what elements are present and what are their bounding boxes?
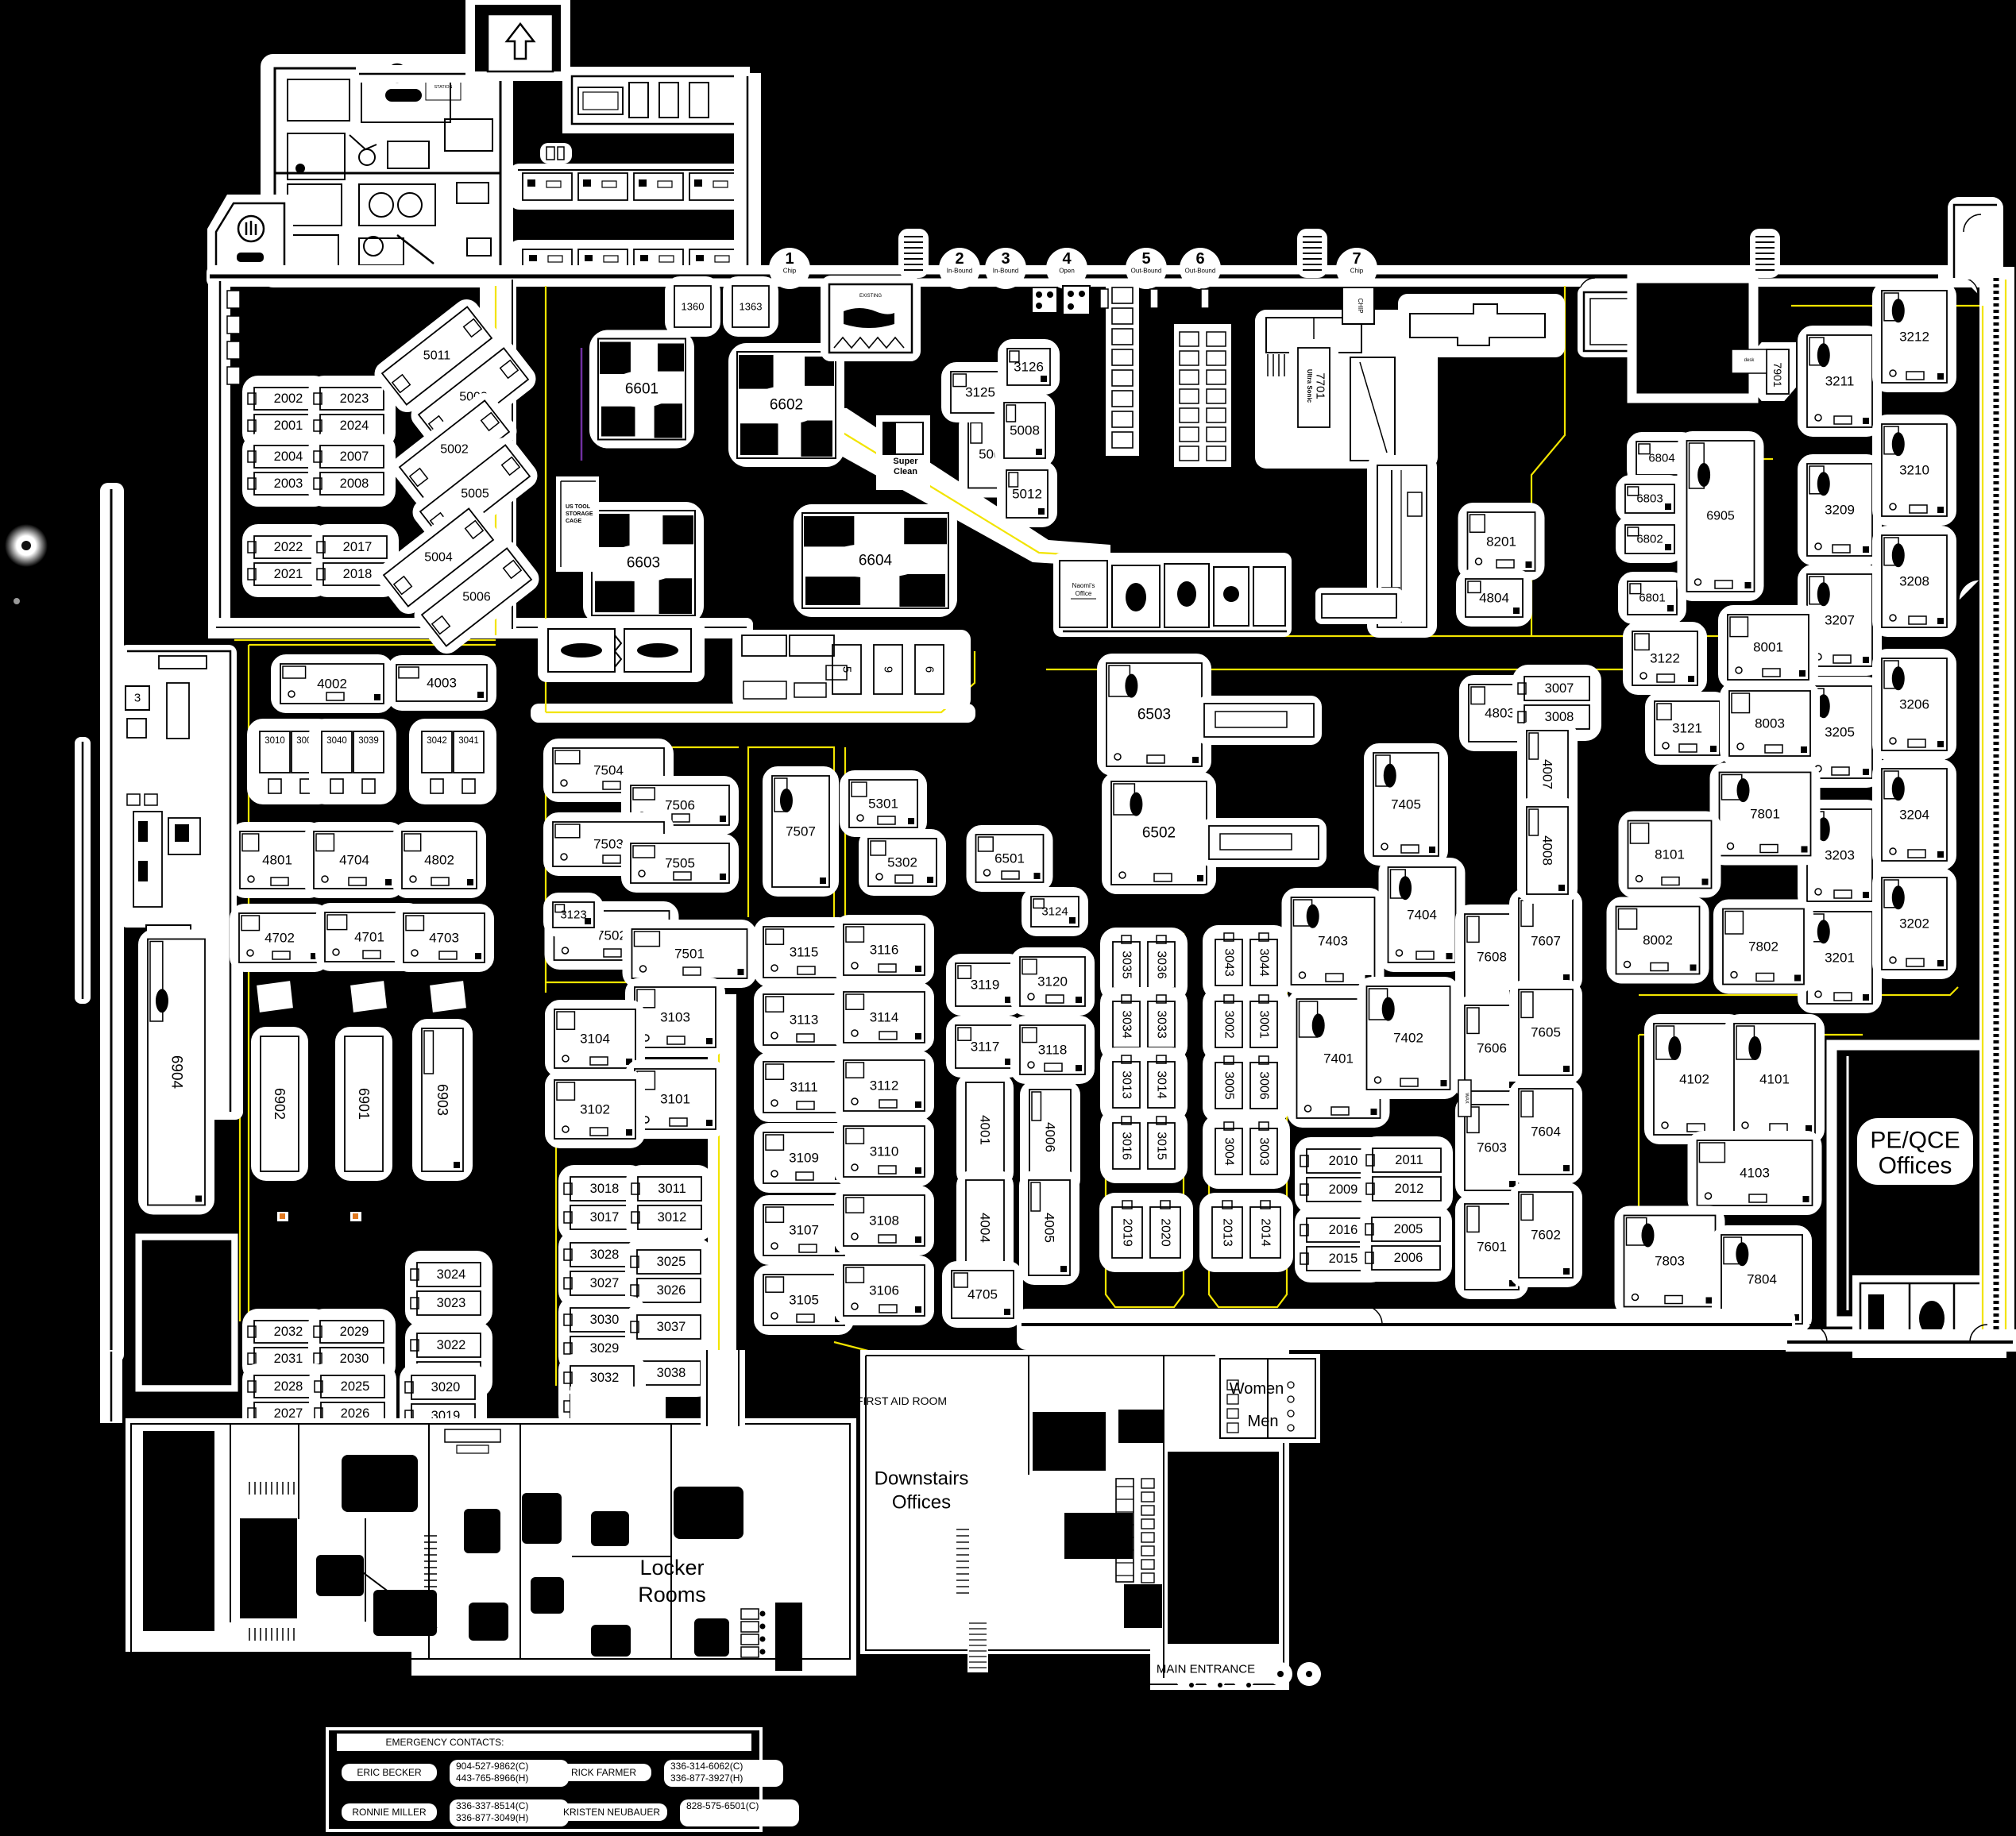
svg-text:3204: 3204 — [1899, 808, 1929, 823]
svg-text:3037: 3037 — [657, 1320, 686, 1334]
svg-text:2028: 2028 — [274, 1379, 303, 1394]
svg-text:3010: 3010 — [265, 736, 285, 746]
svg-text:2001: 2001 — [274, 418, 303, 433]
svg-text:3209: 3209 — [1825, 503, 1855, 518]
svg-text:2: 2 — [955, 250, 964, 268]
svg-text:7701: 7701 — [1314, 372, 1327, 399]
svg-text:3126: 3126 — [1014, 360, 1044, 375]
svg-text:EMERGENCY CONTACTS:: EMERGENCY CONTACTS: — [386, 1737, 504, 1748]
svg-text:6903: 6903 — [434, 1084, 450, 1116]
svg-text:828-575-6501(C): 828-575-6501(C) — [686, 1800, 759, 1811]
svg-text:Downstairs: Downstairs — [875, 1468, 969, 1490]
svg-text:5006: 5006 — [462, 591, 491, 604]
svg-text:2022: 2022 — [274, 540, 303, 554]
svg-text:7501: 7501 — [674, 947, 705, 962]
svg-text:2010: 2010 — [1329, 1154, 1358, 1168]
svg-text:3014: 3014 — [1155, 1070, 1168, 1099]
svg-text:7507: 7507 — [786, 824, 816, 839]
svg-text:2004: 2004 — [274, 449, 303, 464]
svg-text:2018: 2018 — [343, 567, 373, 581]
svg-text:3202: 3202 — [1899, 916, 1929, 931]
svg-text:7401: 7401 — [1323, 1051, 1354, 1066]
svg-text:2007: 2007 — [340, 449, 369, 464]
svg-text:Out-Bound: Out-Bound — [1185, 268, 1216, 275]
svg-text:2024: 2024 — [340, 418, 369, 433]
svg-text:3022: 3022 — [437, 1338, 466, 1352]
svg-text:3203: 3203 — [1825, 848, 1855, 863]
svg-text:7: 7 — [1352, 250, 1361, 268]
svg-text:336-337-8514(C): 336-337-8514(C) — [456, 1800, 528, 1811]
svg-text:US TOOL: US TOOL — [566, 504, 591, 510]
svg-text:5011: 5011 — [423, 349, 451, 363]
svg-text:336-314-6062(C): 336-314-6062(C) — [670, 1761, 743, 1772]
svg-text:3112: 3112 — [870, 1078, 899, 1093]
svg-text:3027: 3027 — [590, 1276, 620, 1290]
svg-text:904-527-9862(C): 904-527-9862(C) — [456, 1761, 528, 1772]
svg-text:3002: 3002 — [1222, 1010, 1236, 1039]
svg-text:7606: 7606 — [1477, 1041, 1507, 1056]
svg-text:Men: Men — [1248, 1413, 1279, 1430]
svg-text:3119: 3119 — [971, 978, 1000, 993]
svg-text:RICK FARMER: RICK FARMER — [571, 1767, 636, 1778]
svg-text:7608: 7608 — [1477, 950, 1507, 965]
svg-text:336-877-3927(H): 336-877-3927(H) — [670, 1772, 743, 1784]
svg-text:3041: 3041 — [458, 736, 479, 746]
svg-text:7402: 7402 — [1393, 1031, 1423, 1046]
svg-text:CHIP: CHIP — [1357, 298, 1364, 313]
svg-text:3036: 3036 — [1155, 951, 1168, 979]
svg-text:RONNIE MILLER: RONNIE MILLER — [352, 1807, 427, 1818]
svg-text:EXISTING: EXISTING — [859, 294, 882, 299]
svg-text:3107: 3107 — [789, 1223, 819, 1238]
svg-text:3207: 3207 — [1825, 613, 1855, 628]
svg-text:2013: 2013 — [1221, 1218, 1234, 1247]
svg-text:7802: 7802 — [1748, 939, 1778, 955]
svg-text:3208: 3208 — [1899, 574, 1929, 589]
svg-text:3111: 3111 — [790, 1080, 817, 1095]
svg-text:5002: 5002 — [440, 443, 469, 457]
svg-text:6603: 6603 — [627, 555, 660, 572]
svg-text:3106: 3106 — [869, 1283, 899, 1298]
svg-text:2029: 2029 — [340, 1325, 369, 1339]
svg-text:ERIC BECKER: ERIC BECKER — [357, 1767, 422, 1778]
svg-text:2021: 2021 — [274, 567, 303, 581]
svg-text:3020: 3020 — [431, 1380, 461, 1394]
svg-text:3117: 3117 — [971, 1039, 1000, 1055]
svg-text:PE/QCE: PE/QCE — [1870, 1128, 1960, 1154]
svg-text:4003: 4003 — [427, 676, 457, 691]
svg-text:3212: 3212 — [1899, 330, 1929, 345]
svg-text:4704: 4704 — [339, 853, 369, 868]
svg-text:3124: 3124 — [1041, 905, 1068, 919]
svg-text:6804: 6804 — [1648, 452, 1674, 465]
svg-text:6602: 6602 — [770, 397, 803, 414]
svg-text:Office: Office — [1076, 590, 1092, 597]
svg-text:6803: 6803 — [1636, 492, 1663, 506]
svg-text:CAGE: CAGE — [566, 519, 582, 524]
svg-text:Naomi's: Naomi's — [1072, 582, 1095, 589]
svg-text:In-Bound: In-Bound — [947, 268, 972, 275]
svg-text:Offices: Offices — [892, 1492, 951, 1514]
svg-text:5302: 5302 — [887, 855, 917, 870]
svg-text:4804: 4804 — [1479, 591, 1509, 606]
svg-text:MAIN ENTRANCE: MAIN ENTRANCE — [1157, 1663, 1255, 1676]
svg-text:7605: 7605 — [1531, 1025, 1561, 1040]
svg-text:4001: 4001 — [978, 1115, 993, 1145]
svg-text:4803: 4803 — [1485, 706, 1515, 721]
svg-text:4101: 4101 — [1759, 1072, 1790, 1087]
svg-text:Locker: Locker — [639, 1556, 704, 1579]
svg-text:2011: 2011 — [1395, 1153, 1423, 1167]
svg-text:3122: 3122 — [1650, 651, 1680, 666]
svg-text:6904: 6904 — [168, 1055, 185, 1090]
svg-text:3125: 3125 — [965, 385, 995, 400]
svg-text:Clean: Clean — [894, 467, 917, 476]
svg-text:2014: 2014 — [1259, 1218, 1273, 1247]
svg-text:3024: 3024 — [437, 1267, 466, 1282]
svg-text:6802: 6802 — [1636, 533, 1663, 546]
svg-text:3123: 3123 — [560, 908, 586, 922]
svg-text:7804: 7804 — [1747, 1272, 1777, 1287]
svg-text:7506: 7506 — [665, 798, 695, 813]
svg-text:3026: 3026 — [657, 1283, 686, 1298]
svg-text:3108: 3108 — [869, 1213, 899, 1228]
svg-text:3120: 3120 — [1037, 974, 1068, 989]
svg-text:3007: 3007 — [1545, 681, 1574, 696]
svg-text:3040: 3040 — [326, 736, 347, 746]
svg-text:8101: 8101 — [1655, 847, 1685, 862]
svg-text:6801: 6801 — [1639, 592, 1665, 605]
svg-text:2005: 2005 — [1394, 1222, 1423, 1236]
svg-text:3038: 3038 — [657, 1366, 686, 1380]
svg-text:3103: 3103 — [660, 1010, 690, 1025]
svg-text:6501: 6501 — [994, 851, 1025, 866]
svg-text:336-877-3049(H): 336-877-3049(H) — [456, 1812, 528, 1823]
svg-text:2020: 2020 — [1159, 1218, 1172, 1247]
svg-text:2003: 2003 — [274, 476, 303, 491]
svg-text:3109: 3109 — [789, 1151, 819, 1166]
svg-text:6902: 6902 — [272, 1088, 288, 1120]
svg-text:7607: 7607 — [1531, 934, 1561, 949]
svg-text:4103: 4103 — [1740, 1166, 1770, 1181]
svg-text:7503: 7503 — [593, 837, 624, 852]
svg-text:Out-Bound: Out-Bound — [1131, 268, 1162, 275]
svg-text:3017: 3017 — [590, 1210, 620, 1225]
svg-text:4802: 4802 — [424, 853, 454, 868]
svg-text:8002: 8002 — [1643, 933, 1673, 948]
svg-text:4002: 4002 — [317, 677, 347, 692]
svg-text:4702: 4702 — [265, 931, 295, 946]
svg-text:2019: 2019 — [1121, 1218, 1134, 1247]
svg-text:6905: 6905 — [1706, 510, 1735, 523]
svg-text:3015: 3015 — [1155, 1132, 1168, 1160]
svg-text:3102: 3102 — [580, 1102, 610, 1117]
svg-text:7901: 7901 — [1771, 362, 1784, 387]
svg-text:3023: 3023 — [437, 1296, 466, 1310]
svg-text:Chip: Chip — [783, 268, 797, 275]
svg-text:3006: 3006 — [1257, 1071, 1271, 1100]
svg-text:6604: 6604 — [859, 553, 893, 569]
svg-text:7603: 7603 — [1477, 1140, 1507, 1155]
svg-text:3001: 3001 — [1257, 1010, 1271, 1039]
svg-text:WAX: WAX — [1464, 1093, 1469, 1103]
svg-text:Ultra Sonic: Ultra Sonic — [1306, 369, 1313, 403]
svg-text:5004: 5004 — [424, 551, 453, 565]
svg-text:3016: 3016 — [1120, 1132, 1134, 1160]
svg-text:3035: 3035 — [1120, 951, 1134, 979]
svg-text:3034: 3034 — [1120, 1010, 1134, 1039]
svg-text:4008: 4008 — [1540, 835, 1555, 866]
svg-text:3032: 3032 — [590, 1371, 620, 1385]
svg-text:3205: 3205 — [1825, 725, 1855, 740]
svg-text:7601: 7601 — [1477, 1240, 1507, 1255]
svg-text:4102: 4102 — [1679, 1072, 1709, 1087]
svg-text:7801: 7801 — [1750, 807, 1780, 822]
svg-text:7404: 7404 — [1407, 908, 1437, 923]
svg-text:3210: 3210 — [1899, 463, 1929, 478]
svg-text:FIRST AID ROOM: FIRST AID ROOM — [856, 1394, 947, 1407]
svg-text:8201: 8201 — [1486, 534, 1516, 550]
svg-text:Women: Women — [1230, 1380, 1284, 1398]
svg-text:2015: 2015 — [1329, 1252, 1358, 1266]
svg-text:3104: 3104 — [580, 1032, 610, 1047]
svg-text:5005: 5005 — [461, 488, 489, 501]
svg-text:KRISTEN NEUBAUER: KRISTEN NEUBAUER — [563, 1807, 660, 1818]
svg-text:4801: 4801 — [262, 853, 292, 868]
svg-text:3028: 3028 — [590, 1248, 620, 1262]
svg-text:9: 9 — [882, 666, 895, 673]
svg-text:1363: 1363 — [740, 301, 763, 313]
svg-text:Offices: Offices — [1879, 1153, 1952, 1179]
svg-text:8001: 8001 — [1753, 640, 1783, 655]
svg-text:3033: 3033 — [1155, 1010, 1168, 1039]
svg-text:7505: 7505 — [665, 856, 695, 871]
svg-text:7604: 7604 — [1531, 1124, 1561, 1140]
svg-text:3101: 3101 — [660, 1092, 690, 1107]
svg-text:3105: 3105 — [789, 1293, 819, 1308]
svg-text:desk: desk — [1744, 358, 1755, 363]
svg-text:4005: 4005 — [1042, 1213, 1057, 1243]
svg-text:5008: 5008 — [1010, 423, 1040, 438]
svg-text:5012: 5012 — [1012, 487, 1042, 502]
svg-text:STATION: STATION — [434, 85, 452, 90]
svg-text:3206: 3206 — [1899, 697, 1929, 712]
svg-text:7803: 7803 — [1655, 1254, 1685, 1269]
svg-text:2009: 2009 — [1329, 1182, 1358, 1197]
svg-text:5301: 5301 — [868, 796, 898, 812]
svg-text:3211: 3211 — [1825, 374, 1855, 389]
svg-text:2012: 2012 — [1395, 1182, 1424, 1196]
svg-text:6503: 6503 — [1137, 707, 1171, 723]
svg-text:3: 3 — [134, 692, 141, 705]
svg-text:6: 6 — [1195, 250, 1204, 268]
svg-text:3114: 3114 — [870, 1010, 899, 1025]
svg-text:1: 1 — [785, 250, 794, 268]
svg-text:3039: 3039 — [358, 736, 379, 746]
svg-text:2008: 2008 — [340, 476, 369, 491]
svg-text:Rooms: Rooms — [638, 1583, 706, 1606]
svg-text:Open: Open — [1059, 268, 1075, 275]
svg-text:7405: 7405 — [1391, 797, 1421, 812]
svg-text:3012: 3012 — [658, 1210, 687, 1225]
svg-text:3118: 3118 — [1038, 1043, 1068, 1058]
svg-text:3044: 3044 — [1257, 948, 1271, 977]
svg-text:2006: 2006 — [1394, 1251, 1423, 1265]
svg-text:Super: Super — [893, 457, 918, 466]
svg-text:4007: 4007 — [1540, 759, 1555, 789]
svg-text:1360: 1360 — [682, 301, 705, 313]
svg-text:3116: 3116 — [870, 943, 899, 958]
svg-text:6601: 6601 — [625, 381, 658, 398]
svg-text:2017: 2017 — [343, 540, 373, 554]
svg-text:2002: 2002 — [274, 391, 303, 406]
svg-text:5: 5 — [1141, 250, 1150, 268]
svg-text:6502: 6502 — [1142, 825, 1176, 842]
svg-text:4004: 4004 — [978, 1213, 993, 1243]
svg-text:3013: 3013 — [1120, 1070, 1134, 1099]
svg-text:5: 5 — [840, 666, 854, 673]
svg-text:STORAGE: STORAGE — [566, 511, 593, 517]
svg-text:3201: 3201 — [1825, 951, 1855, 966]
svg-text:7602: 7602 — [1531, 1228, 1561, 1243]
svg-text:2016: 2016 — [1329, 1223, 1358, 1237]
svg-text:3030: 3030 — [590, 1313, 620, 1327]
svg-text:3003: 3003 — [1257, 1137, 1271, 1166]
svg-text:3011: 3011 — [658, 1182, 686, 1196]
svg-text:3029: 3029 — [590, 1341, 620, 1356]
svg-text:2023: 2023 — [340, 391, 369, 406]
svg-text:3113: 3113 — [790, 1012, 819, 1028]
svg-text:3005: 3005 — [1222, 1071, 1236, 1100]
svg-text:3025: 3025 — [657, 1255, 686, 1269]
svg-text:3004: 3004 — [1222, 1137, 1236, 1166]
svg-text:4701: 4701 — [354, 930, 384, 945]
svg-text:In-Bound: In-Bound — [993, 268, 1018, 275]
svg-text:3115: 3115 — [790, 945, 819, 960]
svg-text:3121: 3121 — [1672, 721, 1702, 736]
svg-text:8003: 8003 — [1755, 716, 1785, 731]
svg-text:7403: 7403 — [1318, 934, 1348, 949]
svg-text:3018: 3018 — [590, 1182, 620, 1196]
svg-text:2025: 2025 — [341, 1379, 370, 1394]
svg-text:6: 6 — [923, 666, 937, 673]
svg-text:4705: 4705 — [967, 1287, 998, 1302]
svg-text:7504: 7504 — [593, 763, 624, 778]
svg-text:3110: 3110 — [870, 1144, 899, 1159]
svg-text:Chip: Chip — [1350, 268, 1364, 275]
svg-text:3: 3 — [1001, 250, 1010, 268]
svg-text:4: 4 — [1062, 250, 1072, 268]
svg-text:4703: 4703 — [429, 931, 459, 946]
svg-text:3043: 3043 — [1222, 948, 1236, 977]
svg-text:4006: 4006 — [1043, 1122, 1058, 1152]
svg-text:2032: 2032 — [274, 1325, 303, 1339]
svg-text:6901: 6901 — [356, 1088, 372, 1120]
svg-text:443-765-8966(H): 443-765-8966(H) — [456, 1772, 528, 1784]
svg-text:3042: 3042 — [427, 736, 447, 746]
